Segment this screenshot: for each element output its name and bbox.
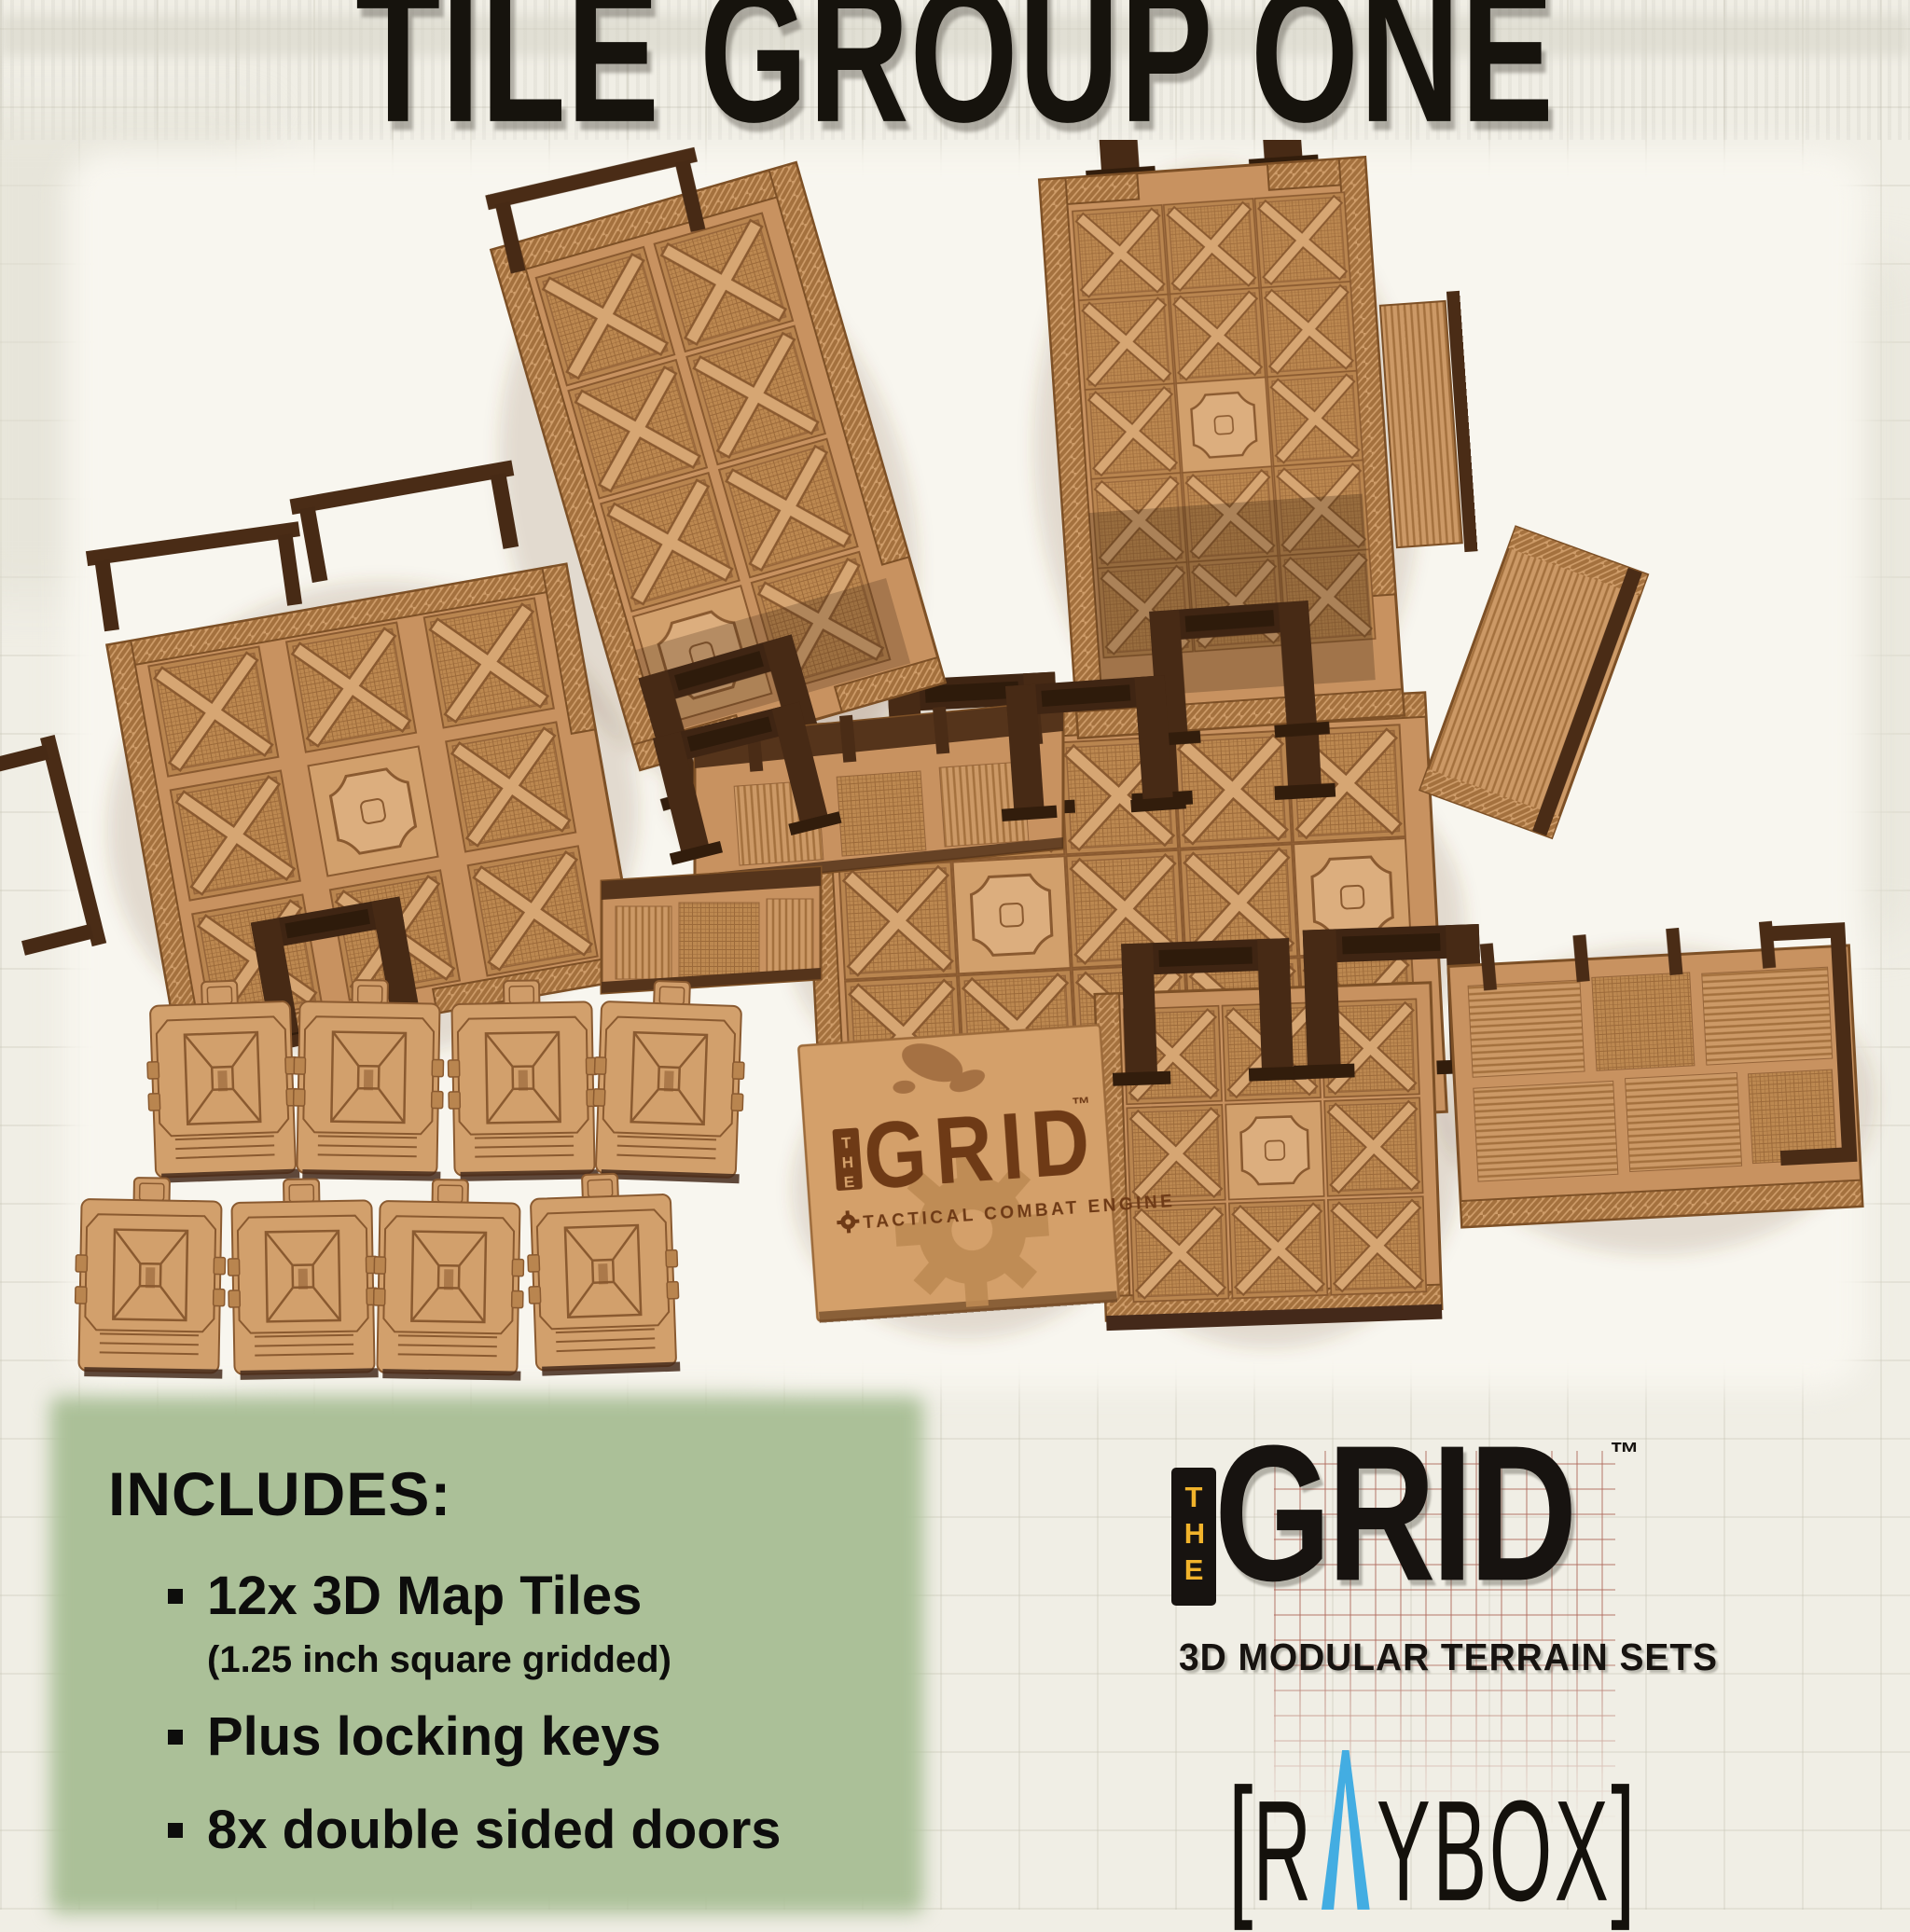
includes-bullet-doors: 8x double sided doors <box>168 1801 920 1860</box>
includes-panel: INCLUDES: 12x 3D Map Tiles (1.25 inch sq… <box>54 1401 920 1910</box>
branded-tile-name: GRID <box>861 1088 1093 1209</box>
door-piece <box>74 1177 227 1379</box>
walkway-top-right <box>1420 527 1648 837</box>
door-piece <box>525 1172 681 1376</box>
includes-bullet-map-tiles-sub: (1.25 inch square gridded) <box>207 1639 920 1681</box>
includes-bullet-map-tiles: 12x 3D Map Tiles <box>168 1566 920 1626</box>
grid-logo-the: THE <box>1184 1479 1203 1606</box>
door-piece <box>372 1179 525 1381</box>
door-piece <box>447 979 600 1181</box>
door-pieces <box>74 979 747 1381</box>
tile-room-top-right <box>1029 140 1490 752</box>
raybox-a-triangle-icon <box>1316 1750 1374 1910</box>
raybox-letter-r: R <box>1253 1795 1313 1910</box>
raybox-right-bracket: ] <box>1611 1778 1635 1910</box>
raybox-left-bracket: [ <box>1228 1778 1253 1910</box>
grid-logo-trademark: ™ <box>1610 1436 1640 1470</box>
bullet-square-icon <box>168 1730 183 1745</box>
includes-heading: INCLUDES: <box>108 1458 920 1529</box>
product-photo: THE GRID ™ TACTICAL COMBAT ENGINE <box>0 140 1910 1399</box>
includes-bullet-locking-keys: Plus locking keys <box>168 1707 920 1767</box>
walkway-right <box>1446 917 1862 1227</box>
raybox-logo: [ R YBOX ] <box>1152 1736 1711 1910</box>
bullet-square-icon <box>168 1823 183 1838</box>
bullet-square-icon <box>168 1589 183 1604</box>
corridor-middle <box>602 867 821 993</box>
door-piece <box>591 979 747 1183</box>
door-piece <box>145 979 300 1183</box>
door-piece <box>292 979 445 1181</box>
raybox-letters-ybox: YBOX <box>1377 1795 1611 1910</box>
door-piece <box>227 1178 380 1380</box>
grid-logo-name: GRID <box>1214 1402 1573 1625</box>
grid-logo: THE GRID ™ 3D MODULAR TERRAIN SETS <box>1164 1434 1705 1742</box>
branded-tile-trademark: ™ <box>1071 1094 1090 1115</box>
grid-logo-the-box: THE <box>1171 1468 1216 1606</box>
grid-logo-tagline: 3D MODULAR TERRAIN SETS <box>1179 1635 1718 1679</box>
